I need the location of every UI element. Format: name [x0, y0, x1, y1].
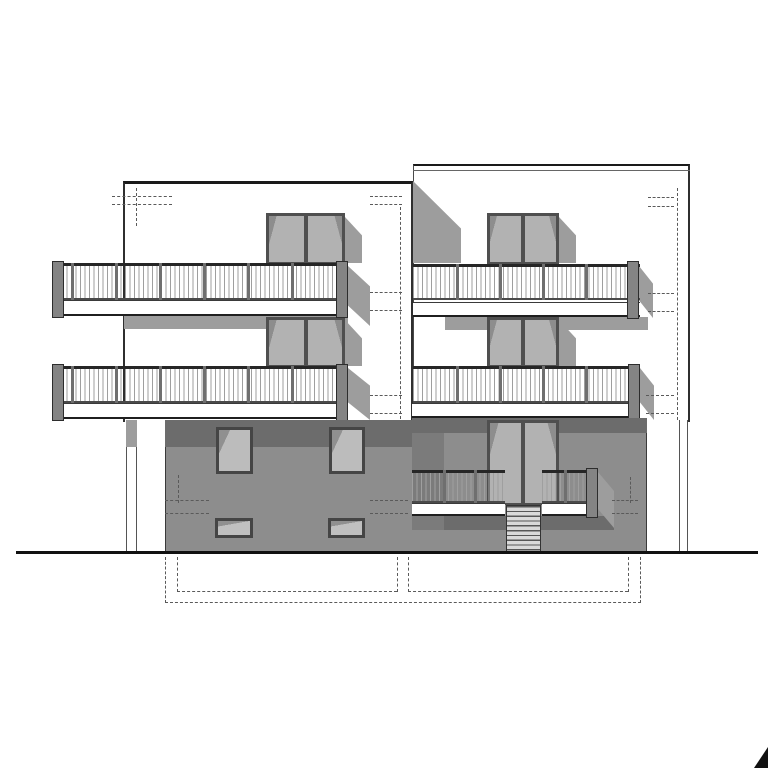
- balcony-door-1f-right: [487, 317, 559, 367]
- ground-wall-left-shadowband: [165, 420, 412, 447]
- railing-post: [474, 470, 477, 503]
- railing-post: [456, 366, 459, 403]
- entry-endpost: [586, 468, 598, 518]
- railing-post: [585, 366, 588, 403]
- railing-post: [585, 264, 588, 300]
- railing-post: [247, 366, 250, 403]
- right-parapet-line: [413, 170, 690, 171]
- hidden-line-mark: [648, 197, 674, 198]
- basement-outline: [640, 557, 641, 603]
- railing-post: [564, 470, 567, 503]
- hidden-line-mark: [370, 413, 402, 414]
- railing-post: [291, 366, 294, 403]
- corner-mark-triangle: [754, 747, 768, 768]
- hidden-line-mark: [165, 500, 209, 501]
- hidden-line-mark: [646, 413, 674, 414]
- entrance-stairs: [506, 505, 541, 553]
- hidden-line-mark: [370, 310, 402, 311]
- railing-post: [542, 264, 545, 300]
- ground-line: [16, 551, 758, 554]
- railing-post: [71, 263, 74, 300]
- basement-outline: [165, 602, 641, 603]
- hidden-line-mark: [370, 196, 402, 197]
- railing-post: [499, 366, 502, 403]
- balcony-door-2f-right: [487, 213, 559, 264]
- balcony-endpost-2f-right: [627, 261, 639, 319]
- basement-outline: [177, 557, 178, 592]
- balcony-endpost-2f-left-a: [52, 261, 64, 318]
- basement-outline: [177, 591, 397, 592]
- ground-window-left-a: [216, 427, 253, 474]
- basement-outline: [397, 557, 398, 592]
- hidden-line-mark: [165, 513, 209, 514]
- hidden-line-mark: [400, 207, 401, 419]
- hidden-line-mark: [370, 395, 402, 396]
- hidden-line-mark: [370, 292, 402, 293]
- railing-post: [542, 366, 545, 403]
- railing-post: [456, 264, 459, 300]
- balcony-door-1f-left: [266, 317, 345, 367]
- railing-post: [291, 263, 294, 300]
- ground-window-left-b: [329, 427, 365, 474]
- hidden-line-mark: [648, 206, 674, 207]
- balcony-endpost-2f-left-b: [336, 261, 348, 318]
- hidden-line-mark: [370, 204, 402, 205]
- railing-post: [499, 264, 502, 300]
- basement-window-left-a: [215, 518, 253, 538]
- balcony-door-2f-left: [266, 213, 345, 264]
- basement-outline: [628, 557, 629, 592]
- entry-railing-left: [412, 470, 505, 503]
- balcony-railing-1f-left: [53, 366, 348, 403]
- support-column-shadow: [126, 420, 137, 447]
- balcony-fascia-1f-left: [53, 403, 348, 419]
- basement-outline: [408, 557, 409, 592]
- balcony-fascia-2f-left: [53, 300, 348, 316]
- hidden-line-mark: [136, 188, 137, 226]
- hidden-line-mark: [648, 293, 674, 294]
- basement-outline: [408, 591, 628, 592]
- hidden-line-mark: [630, 477, 631, 503]
- balcony-endpost-1f-left-b: [336, 364, 348, 421]
- railing-post: [443, 470, 446, 503]
- balcony-railing-2f-left: [53, 263, 348, 300]
- entry-fascia-left: [412, 503, 505, 516]
- balcony-fascia-1f-right: [412, 403, 640, 418]
- railing-post: [247, 263, 250, 300]
- hidden-line-mark: [677, 188, 678, 420]
- railing-post: [115, 366, 118, 403]
- hidden-line-mark: [370, 513, 408, 514]
- drawing-canvas: [0, 0, 768, 768]
- hidden-line-mark: [112, 204, 172, 205]
- basement-outline: [165, 557, 166, 603]
- balcony-fascia-2f-right: [413, 302, 640, 317]
- railing-post: [159, 263, 162, 300]
- balcony-railing-1f-right: [413, 366, 640, 403]
- hidden-line-mark: [612, 500, 638, 501]
- hidden-line-mark: [112, 196, 172, 197]
- hidden-line-mark: [648, 311, 674, 312]
- hidden-line-mark: [612, 513, 638, 514]
- railing-post: [159, 366, 162, 403]
- hidden-line-mark: [646, 395, 674, 396]
- balcony-railing-2f-right: [413, 264, 640, 300]
- balcony-endpost-1f-right: [628, 364, 640, 421]
- railing-post: [115, 263, 118, 300]
- railing-post: [203, 366, 206, 403]
- hidden-line-mark: [370, 500, 408, 501]
- balcony-endpost-1f-left-a: [52, 364, 64, 421]
- ground-column-right: [679, 420, 688, 552]
- railing-post: [203, 263, 206, 300]
- hidden-line-mark: [178, 475, 179, 503]
- basement-window-left-b: [328, 518, 365, 538]
- railing-post: [71, 366, 74, 403]
